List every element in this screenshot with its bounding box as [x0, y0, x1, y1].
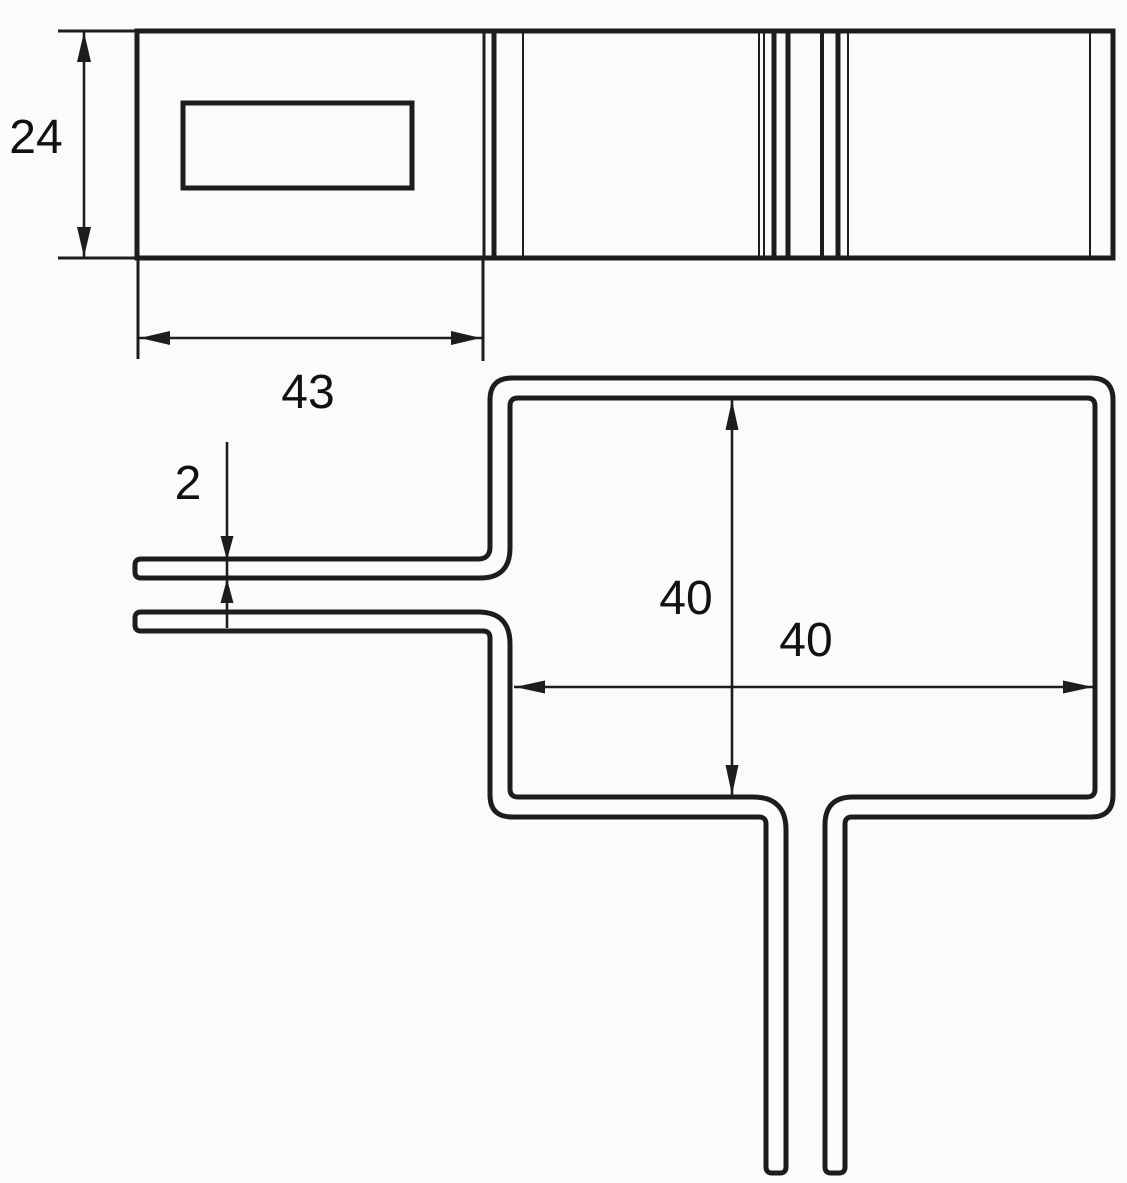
strip-outline: [137, 31, 1113, 258]
dim-43-arrow-right: [451, 331, 481, 345]
top-view: [137, 31, 1113, 258]
dimension-label-40-horizontal: 40: [779, 614, 832, 667]
dim-40v-arrow-down: [726, 765, 739, 795]
dim-2-arrow-up: [221, 579, 234, 603]
dim-40h-arrow-right: [1063, 681, 1093, 694]
label-window: [183, 103, 412, 188]
dim-43-arrow-left: [140, 331, 170, 345]
dimension-40-vertical: 40: [659, 399, 738, 796]
wire-upper-path: [135, 378, 1113, 1173]
front-view: [135, 378, 1113, 1173]
technical-drawing: 24 43 2 40: [0, 0, 1127, 1183]
dim-24-arrow-up: [77, 32, 91, 62]
dimension-label-43: 43: [281, 366, 334, 419]
dim-24-arrow-down: [77, 227, 91, 257]
dimension-label-24: 24: [9, 111, 62, 164]
dim-40v-arrow-up: [726, 400, 739, 430]
dim-2-arrow-down: [221, 536, 234, 560]
dimension-label-40-vertical: 40: [659, 572, 712, 625]
dimension-24: 24: [9, 31, 138, 258]
drawing-svg: 24 43 2 40: [0, 0, 1127, 1183]
wire-lower-path: [135, 612, 786, 1173]
dimension-label-2: 2: [175, 457, 202, 510]
dim-40h-arrow-left: [515, 681, 545, 694]
dimension-40-horizontal: 40: [514, 614, 1094, 694]
dimension-2: 2: [175, 442, 234, 628]
dimension-43: 43: [138, 258, 483, 419]
